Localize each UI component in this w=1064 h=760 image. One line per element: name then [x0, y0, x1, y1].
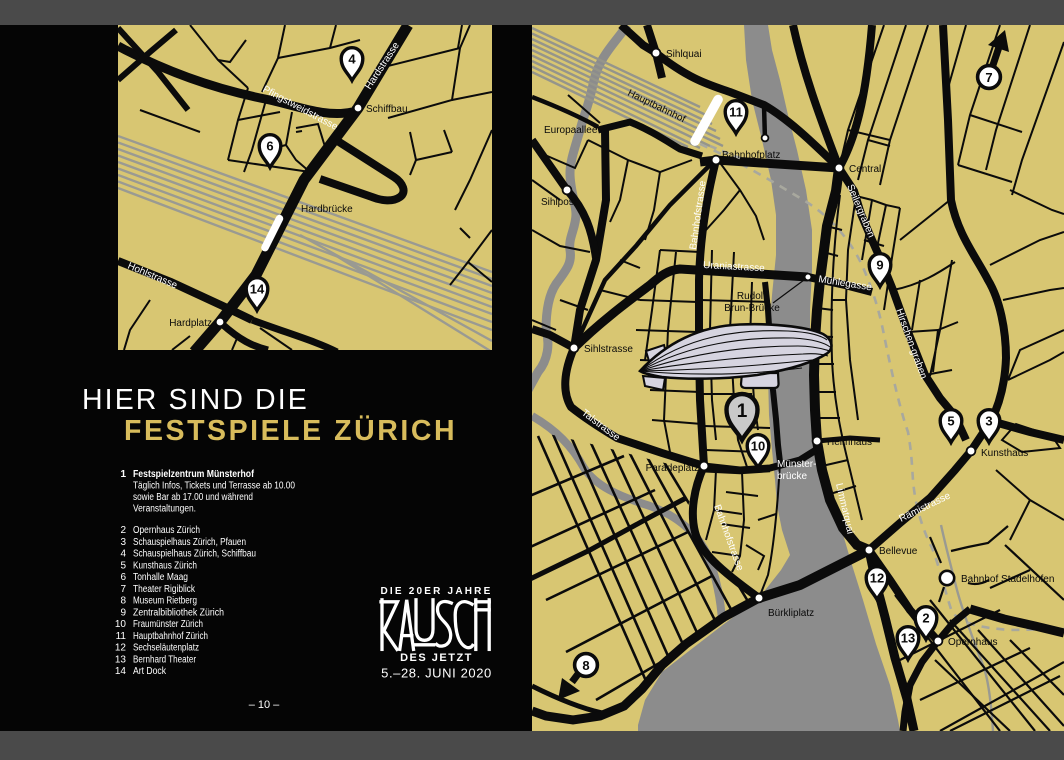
svg-text:9: 9	[876, 258, 883, 273]
svg-text:3: 3	[120, 537, 126, 548]
svg-text:14: 14	[250, 282, 265, 297]
svg-text:8: 8	[120, 596, 126, 607]
svg-text:1: 1	[737, 401, 748, 422]
svg-text:10: 10	[115, 619, 127, 630]
svg-text:5.–28. JUNI 2020: 5.–28. JUNI 2020	[381, 666, 492, 681]
svg-text:Bürkliplatz: Bürkliplatz	[768, 608, 814, 619]
svg-text:Bahnhofplatz: Bahnhofplatz	[722, 150, 780, 161]
svg-text:Brun-Brücke: Brun-Brücke	[724, 303, 780, 314]
svg-text:brücke: brücke	[777, 471, 807, 482]
svg-text:11: 11	[729, 105, 743, 120]
svg-text:Kunsthaus Zürich: Kunsthaus Zürich	[133, 560, 197, 571]
svg-text:Täglich Infos, Tickets und Ter: Täglich Infos, Tickets und Terrasse ab 1…	[133, 481, 295, 492]
svg-text:9: 9	[120, 607, 126, 618]
svg-text:Hauptbahnhof Zürich: Hauptbahnhof Zürich	[133, 631, 208, 642]
svg-text:13: 13	[115, 654, 127, 665]
svg-text:14: 14	[115, 666, 127, 677]
svg-text:Bellevue: Bellevue	[879, 546, 918, 557]
svg-text:sowie Bar ab 17.00 und während: sowie Bar ab 17.00 und während	[133, 492, 253, 503]
svg-text:Schauspielhaus Zürich, Pfauen: Schauspielhaus Zürich, Pfauen	[133, 537, 246, 548]
svg-text:Opernhaus Zürich: Opernhaus Zürich	[133, 525, 200, 536]
svg-text:Hardplatz: Hardplatz	[169, 318, 212, 329]
svg-text:Sihlquai: Sihlquai	[666, 49, 702, 60]
svg-text:2: 2	[922, 611, 929, 626]
svg-text:13: 13	[901, 631, 915, 646]
svg-text:DIE 20ER JAHRE: DIE 20ER JAHRE	[381, 586, 493, 597]
svg-text:Art Dock: Art Dock	[133, 666, 167, 677]
svg-text:3: 3	[985, 414, 992, 429]
svg-text:Sihlpost: Sihlpost	[541, 197, 577, 208]
svg-text:Paradeplatz: Paradeplatz	[646, 463, 699, 474]
svg-text:7: 7	[985, 70, 992, 85]
svg-text:6: 6	[266, 139, 273, 154]
svg-text:FESTSPIELE ZÜRICH: FESTSPIELE ZÜRICH	[124, 415, 457, 447]
svg-text:12: 12	[870, 571, 884, 586]
svg-text:Hardbrücke: Hardbrücke	[301, 204, 353, 215]
svg-text:Schiffbau: Schiffbau	[366, 104, 408, 115]
svg-text:4: 4	[120, 549, 126, 560]
svg-text:Sihlstrasse: Sihlstrasse	[584, 344, 633, 355]
svg-text:DES JETZT: DES JETZT	[400, 652, 473, 664]
svg-text:Fraumünster Zürich: Fraumünster Zürich	[133, 619, 203, 630]
svg-text:8: 8	[582, 658, 589, 673]
svg-text:Theater Rigiblick: Theater Rigiblick	[133, 584, 196, 595]
svg-text:Museum Rietberg: Museum Rietberg	[133, 596, 197, 607]
svg-text:Münster-: Münster-	[777, 459, 816, 470]
svg-text:7: 7	[120, 584, 126, 595]
svg-text:– 10 –: – 10 –	[249, 699, 280, 711]
svg-text:Bahnhof Stadelhofen: Bahnhof Stadelhofen	[961, 574, 1054, 585]
svg-text:Veranstaltungen.: Veranstaltungen.	[133, 504, 196, 515]
svg-text:5: 5	[947, 414, 954, 429]
svg-text:Opernhaus: Opernhaus	[948, 637, 997, 648]
svg-text:Sechseläutenplatz: Sechseläutenplatz	[133, 643, 199, 654]
svg-text:Schauspielhaus Zürich, Schiffb: Schauspielhaus Zürich, Schiffbau	[133, 549, 256, 560]
svg-text:11: 11	[116, 631, 127, 642]
svg-text:Kunsthaus: Kunsthaus	[981, 448, 1028, 459]
svg-text:Zentralbibliothek Zürich: Zentralbibliothek Zürich	[133, 607, 224, 618]
svg-text:HIER SIND DIE: HIER SIND DIE	[82, 384, 309, 416]
svg-text:2: 2	[120, 525, 126, 536]
svg-text:Festspielzentrum Münsterhof: Festspielzentrum Münsterhof	[133, 469, 255, 480]
svg-text:Central: Central	[849, 164, 881, 175]
svg-text:12: 12	[115, 643, 127, 654]
svg-text:4: 4	[348, 52, 356, 67]
svg-text:Europaallee: Europaallee	[544, 125, 598, 136]
svg-text:Bernhard Theater: Bernhard Theater	[133, 654, 197, 665]
svg-text:1: 1	[120, 469, 126, 480]
svg-text:Tonhalle Maag: Tonhalle Maag	[133, 572, 188, 583]
svg-text:5: 5	[120, 560, 126, 571]
svg-text:10: 10	[751, 439, 765, 454]
svg-text:6: 6	[120, 572, 126, 583]
svg-text:Helmhaus: Helmhaus	[827, 437, 872, 448]
svg-text:Rudolf-: Rudolf-	[737, 291, 769, 302]
